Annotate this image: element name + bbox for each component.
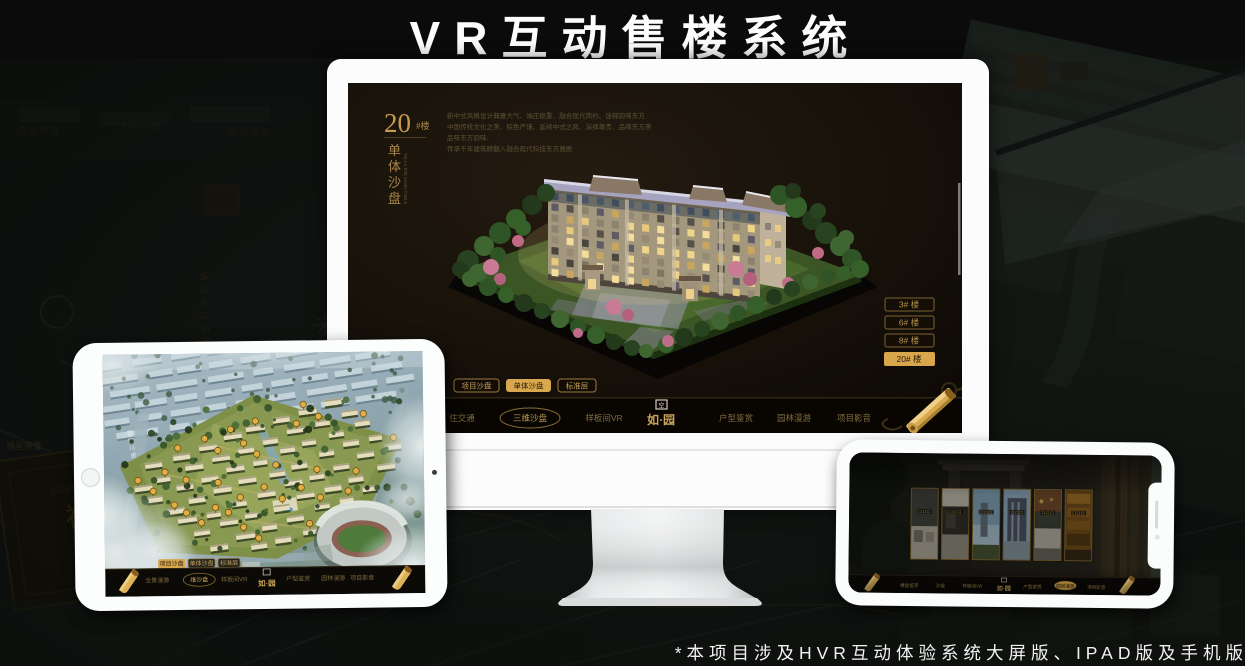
svg-text:6# 楼: 6# 楼 <box>899 318 920 328</box>
svg-text:标准层: 标准层 <box>566 381 589 391</box>
svg-text:盘: 盘 <box>388 191 401 206</box>
svg-text:沙: 沙 <box>388 175 401 190</box>
svg-text:中国传统文化之美、棕色严谨、延续中式之风、演绎尊贵、品味东方: 中国传统文化之美、棕色严谨、延续中式之风、演绎尊贵、品味东方美 <box>447 122 652 131</box>
svg-text:8# 楼: 8# 楼 <box>899 336 920 346</box>
svg-text:项目影音: 项目影音 <box>837 413 872 423</box>
svg-text:体: 体 <box>388 159 401 174</box>
svg-text:如·园: 如·园 <box>258 578 276 588</box>
svg-text:福星惠誉: 福星惠誉 <box>6 440 42 451</box>
svg-text:20# 楼: 20# 楼 <box>896 354 922 364</box>
svg-text:如·园: 如·园 <box>647 412 675 427</box>
svg-text:户型鉴赏: 户型鉴赏 <box>719 413 753 423</box>
svg-text:单: 单 <box>388 143 401 158</box>
svg-text:品味东方韵味.: 品味东方韵味. <box>447 133 489 142</box>
svg-text:传承千年建筑精髓入融合现代科技东方雅居: 传承千年建筑精髓入融合现代科技东方雅居 <box>447 144 573 153</box>
svg-text:3# 楼: 3# 楼 <box>899 300 920 310</box>
svg-text:项目沙盘: 项目沙盘 <box>462 381 492 391</box>
svg-text:#楼: #楼 <box>416 120 430 131</box>
svg-text:空: 空 <box>658 402 664 410</box>
svg-text:样板间VR: 样板间VR <box>585 413 622 423</box>
svg-text:VILLA THE SAND TABLE: VILLA THE SAND TABLE <box>403 153 408 205</box>
svg-text:单体沙盘: 单体沙盘 <box>190 559 214 567</box>
svg-text:全景漫游: 全景漫游 <box>145 576 169 584</box>
svg-text:园林漫游: 园林漫游 <box>777 413 812 423</box>
svg-text:三维沙盘: 三维沙盘 <box>513 413 548 423</box>
svg-text:单体沙盘: 单体沙盘 <box>514 381 544 391</box>
svg-text:新中式风格设计典雅大气、端庄稳重、融合现代简约、诠释韵味东方: 新中式风格设计典雅大气、端庄稳重、融合现代简约、诠释韵味东方 <box>447 111 645 120</box>
svg-text:维沙盘: 维沙盘 <box>190 576 208 584</box>
svg-text:20: 20 <box>384 108 411 138</box>
svg-text:标准层: 标准层 <box>220 559 238 567</box>
svg-text:住交通: 住交通 <box>449 413 475 423</box>
